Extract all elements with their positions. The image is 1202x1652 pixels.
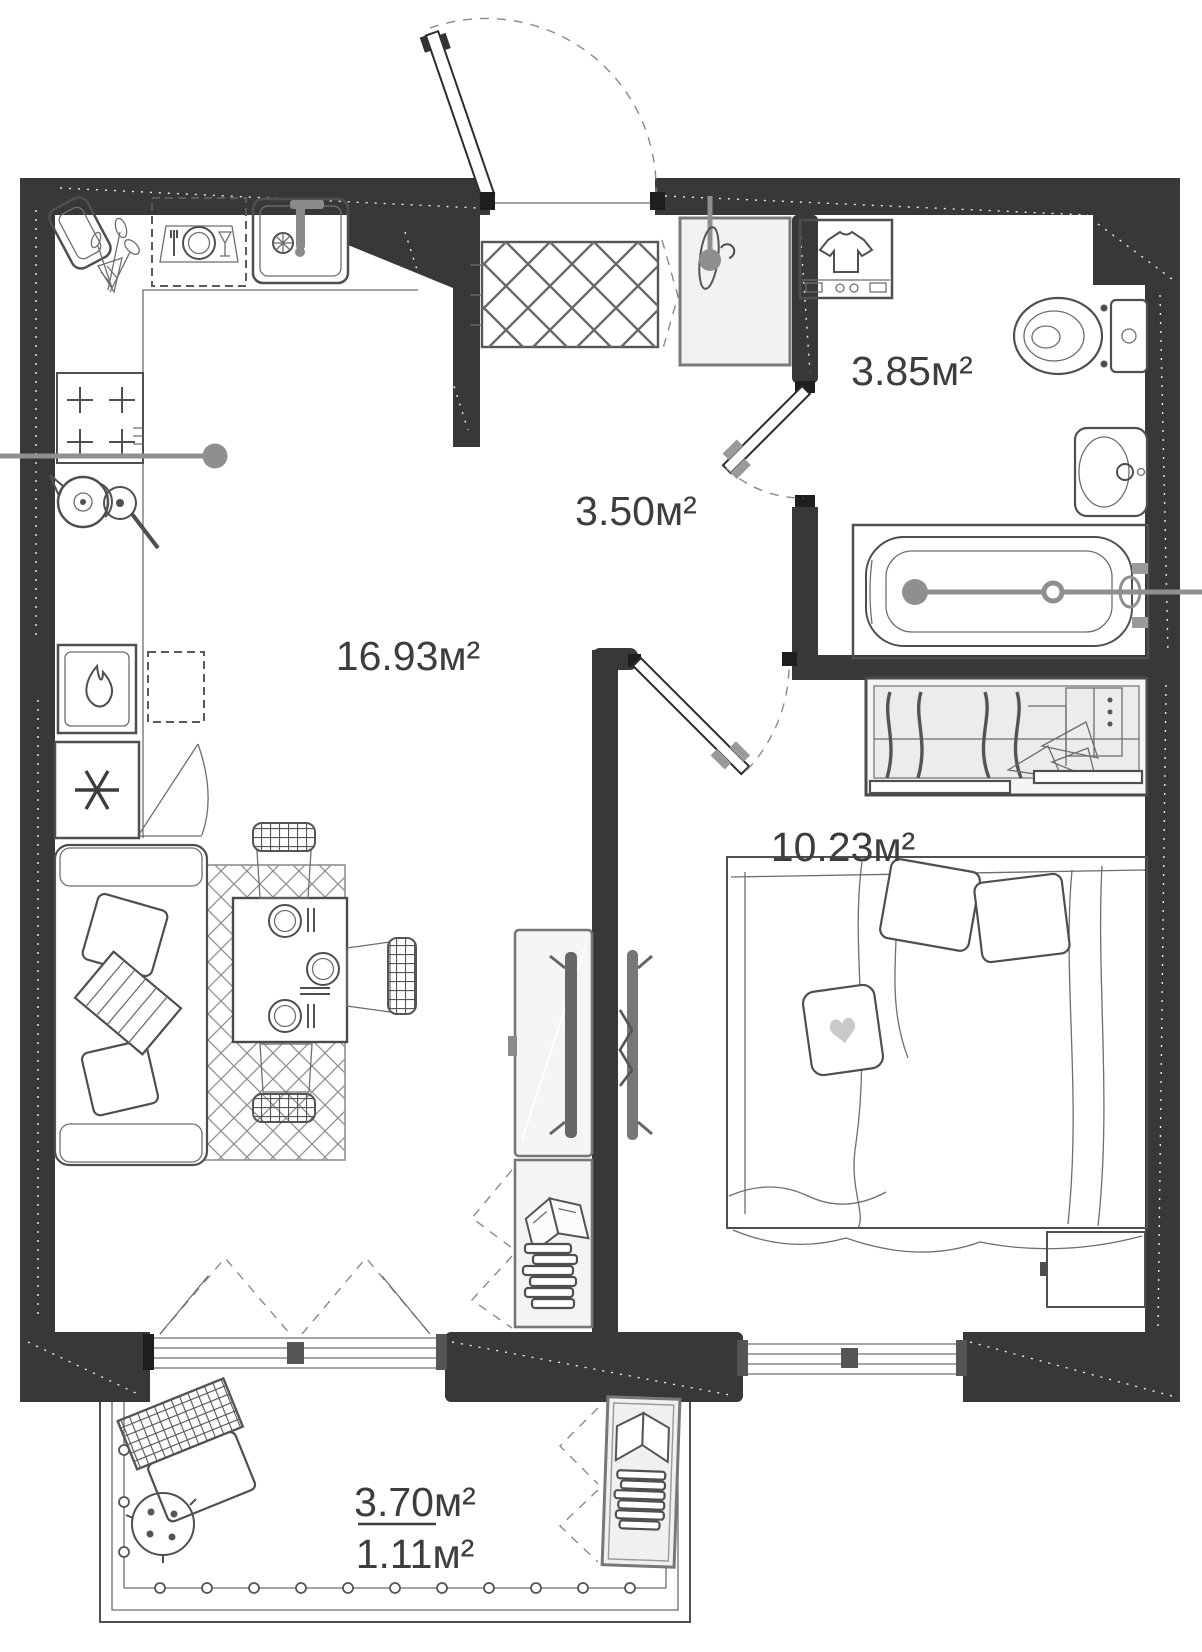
vent-shaft: [470, 242, 658, 347]
bathroom-door: [717, 380, 816, 507]
snowflake-icon: [75, 771, 119, 809]
pillow: [879, 858, 982, 952]
cabinet-door-swing: [140, 744, 208, 836]
sofa: [55, 845, 207, 1165]
dining-table: [233, 898, 347, 1042]
bedroom-area: [620, 678, 1147, 1307]
double-bed: [727, 857, 1147, 1252]
bedroom-window: [737, 1340, 967, 1376]
bedroom-tv: [620, 950, 652, 1140]
tv-console: [508, 930, 592, 1156]
wardrobe: [866, 678, 1147, 795]
appliance-slot-dashed: [148, 652, 204, 722]
flame-icon: [86, 666, 112, 706]
sliding-door-track: [1034, 771, 1142, 783]
bathroom-area: [800, 220, 1202, 658]
dining-chair: [347, 938, 416, 1014]
heart-pillow: [802, 983, 885, 1076]
kitchen-counter-edge: [143, 290, 418, 838]
shelf-door-swing: [560, 1408, 598, 1562]
living-area: [55, 823, 592, 1328]
pillow: [973, 873, 1070, 963]
balcony-bookshelf: [602, 1397, 680, 1567]
kettle: [50, 475, 112, 527]
nightstand-handle: [1040, 1262, 1048, 1276]
nightstand: [1047, 1232, 1145, 1307]
cooktop: [57, 373, 143, 463]
sliding-door-track: [870, 781, 1010, 793]
room-area-label-bathroom: 3.85м²: [851, 348, 973, 394]
hallway-area: [470, 196, 790, 365]
floor-plan-page: 16.93м² 3.50м² 3.85м² 10.23м² 3.70м² 1.1…: [0, 0, 1202, 1652]
coat-closet: [662, 196, 790, 365]
book-cabinet: [472, 1160, 592, 1328]
room-area-label-bedroom: 10.23м²: [771, 824, 915, 870]
kitchen-area: [0, 194, 418, 838]
herb-bouquet: [90, 217, 142, 292]
living-tv: [565, 952, 577, 1138]
bedroom-door: [627, 652, 797, 780]
balcony-area-reduced-label: 1.11м²: [356, 1531, 475, 1577]
room-area-label-kitchen-living: 16.93м²: [336, 633, 480, 679]
shirt-icon: [820, 232, 872, 272]
toilet: [1014, 298, 1147, 374]
sofa-pillow: [81, 1039, 160, 1116]
book-stack-icon: [613, 1470, 665, 1530]
room-area-label-hallway: 3.50м²: [575, 488, 697, 534]
bathroom-sink: [1075, 428, 1147, 516]
floor-plan-drawing: 16.93м² 3.50м² 3.85м² 10.23м² 3.70м² 1.1…: [0, 0, 1202, 1652]
freezer: [55, 742, 139, 838]
balcony-french-window: [143, 1258, 447, 1370]
oven: [58, 645, 136, 733]
faucet-icon: [296, 202, 305, 250]
balcony-area-full-label: 3.70м²: [354, 1479, 476, 1525]
